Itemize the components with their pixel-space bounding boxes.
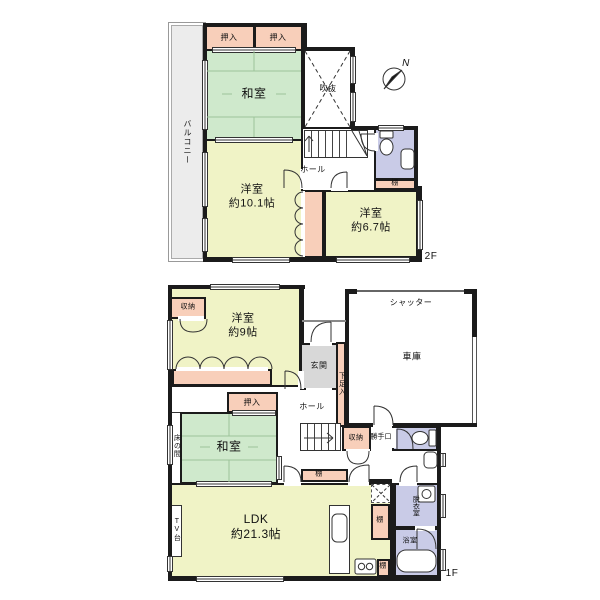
wall — [369, 479, 392, 483]
label-oshiire-2f-left: 押入 — [221, 33, 238, 43]
window — [440, 453, 446, 467]
label-shelf-bottom: 棚 — [379, 563, 387, 572]
washstand-1f — [424, 452, 437, 468]
door-opening — [284, 481, 301, 486]
label-compass-north: N — [402, 58, 410, 71]
label-oshiire-1f: 押入 — [244, 398, 261, 408]
wall — [203, 23, 307, 27]
window — [350, 92, 356, 122]
door-opening — [415, 526, 435, 531]
label-tv-stand: TV台 — [172, 518, 181, 542]
wardrobe-strip — [172, 369, 272, 386]
floor-plan: バルコニー 押入 押入 和室 吹抜 ホール 棚 洋室 約10.1帖 洋室 約6.… — [0, 0, 600, 600]
label-garage: 車庫 — [402, 351, 421, 362]
room-area: 約6.7帖 — [351, 221, 391, 235]
window — [440, 494, 446, 518]
window — [202, 60, 208, 130]
sliding-door — [276, 456, 282, 480]
label-washitsu-1f: 和室 — [216, 440, 241, 455]
label-dressing-room: 脱衣室 — [411, 496, 420, 517]
label-ldk: LDK 約21.3帖 — [231, 512, 281, 542]
window — [196, 576, 284, 582]
label-shelf-2f: 棚 — [391, 180, 399, 189]
label-void: 吹抜 — [320, 84, 337, 94]
sliding-door — [232, 410, 276, 416]
label-shelf-hall: 棚 — [315, 471, 323, 480]
window — [417, 200, 423, 250]
wall — [390, 483, 394, 577]
window — [232, 257, 290, 263]
wall — [303, 47, 355, 51]
shelf-hall-1f — [301, 469, 348, 482]
label-shelf-kitchen: 棚 — [376, 517, 384, 526]
room-name: 洋室 — [228, 312, 258, 326]
window — [336, 257, 410, 263]
label-western-101: 洋室 約10.1帖 — [229, 183, 275, 211]
window — [202, 218, 208, 252]
door-arc — [284, 466, 301, 482]
door-arc — [400, 466, 417, 482]
stairs-1f — [300, 423, 341, 451]
door-opening — [298, 371, 304, 389]
label-hall-2f: ホール — [300, 165, 326, 175]
room-name: 洋室 — [351, 207, 391, 221]
closet-opening — [176, 367, 268, 371]
label-storage-mid: 収納 — [349, 435, 364, 444]
room-area: 約21.3帖 — [231, 527, 281, 542]
window — [202, 152, 208, 207]
garage-top-corner — [347, 289, 357, 294]
door-opening — [346, 449, 370, 454]
porch-line — [302, 320, 346, 322]
wall — [393, 423, 477, 427]
door-opening — [310, 341, 332, 346]
window — [167, 556, 173, 572]
label-storage-nw: 収納 — [181, 304, 196, 313]
back-door-arc — [374, 406, 393, 425]
label-shutter: シャッター — [390, 298, 433, 308]
window — [210, 284, 280, 290]
shutter-line — [357, 290, 464, 292]
label-oshiire-2f-right: 押入 — [270, 33, 287, 43]
room-area: 約9帖 — [228, 326, 258, 340]
room-bath — [394, 528, 439, 577]
sliding-door — [212, 47, 296, 53]
window — [167, 320, 173, 370]
compass-needle — [384, 70, 402, 89]
wall — [299, 285, 304, 345]
label-shoe-cabinet: 下足入 — [337, 372, 346, 396]
refrigerator-space — [371, 484, 391, 503]
room-name: LDK — [231, 512, 281, 527]
door-arc — [349, 465, 369, 482]
room-name: 洋室 — [229, 183, 275, 197]
label-western-9: 洋室 約9帖 — [228, 312, 258, 340]
door-opening — [178, 316, 204, 321]
wall — [303, 23, 307, 51]
sliding-door — [215, 137, 293, 143]
wall — [472, 289, 477, 337]
label-bathroom: 浴室 — [403, 538, 418, 547]
label-western-67: 洋室 約6.7帖 — [351, 207, 391, 235]
closet-opening — [301, 191, 305, 257]
door-opening — [306, 388, 332, 393]
kitchen-counter — [329, 505, 350, 574]
window — [350, 56, 356, 84]
door-opening — [372, 133, 378, 151]
front-door-arc — [311, 322, 331, 342]
door-opening — [348, 481, 369, 486]
wall — [345, 423, 373, 427]
garage-right-wall — [472, 337, 477, 425]
label-entrance: 玄関 — [311, 361, 328, 371]
room-toilet-2f — [374, 126, 416, 180]
sliding-door — [196, 481, 272, 487]
label-floor-2f: 2F — [425, 251, 438, 264]
window — [378, 125, 404, 131]
wall — [414, 126, 418, 190]
door-opening — [399, 481, 417, 486]
label-back-door: 勝手口 — [371, 434, 392, 443]
label-balcony: バルコニー — [182, 120, 192, 165]
stairs-2f-winder — [352, 131, 367, 157]
door-opening — [331, 186, 348, 191]
label-floor-1f: 1F — [446, 568, 459, 581]
label-hall-1f: ホール — [299, 402, 325, 412]
compass-circle — [383, 68, 405, 90]
label-tokonoma: 床の間 — [172, 434, 181, 458]
room-toilet-1f — [392, 426, 438, 451]
wall — [345, 289, 349, 427]
label-washitsu-2f: 和室 — [241, 87, 266, 102]
closet-2f-strip — [303, 190, 324, 258]
room-area: 約10.1帖 — [229, 197, 275, 211]
